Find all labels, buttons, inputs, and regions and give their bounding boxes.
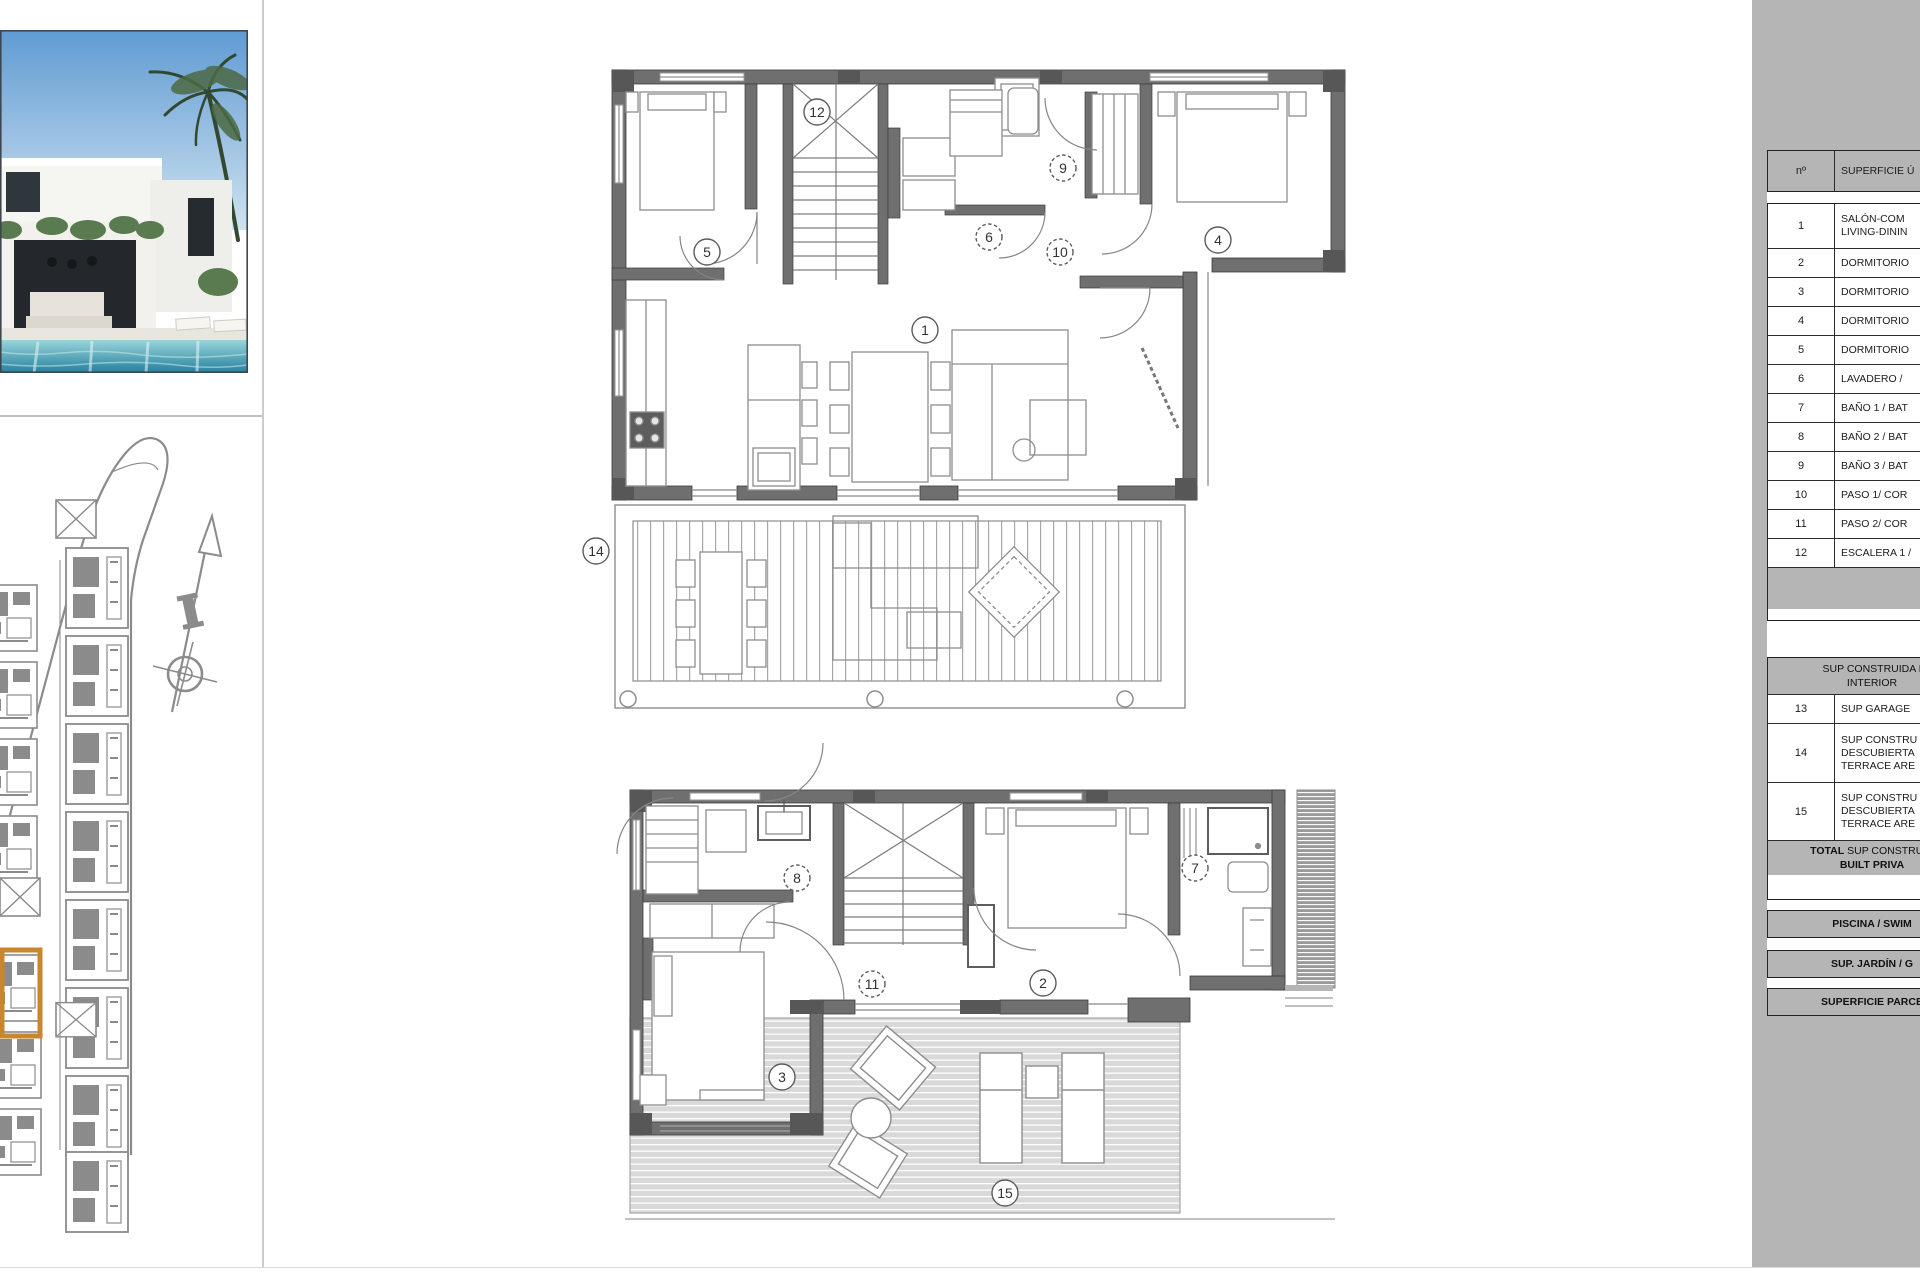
bath-7-fixtures [1184,808,1271,966]
table-row: 3DORMITORIO [1768,278,1920,307]
row-number: 1 [1768,204,1835,248]
row-description: LAVADERO / [1835,371,1920,388]
row-description: PASO 1/ COR [1835,487,1920,504]
table-row: 4DORMITORIO [1768,307,1920,336]
summary-bar-plot: SUPERFICIE PARCE [1767,988,1920,1016]
table-row: 13SUP GARAGE [1768,695,1920,724]
table-row: 8BAÑO 2 / BAT [1768,423,1920,452]
row-description: BAÑO 1 / BAT [1835,400,1920,417]
row-number: 12 [1768,539,1835,567]
table-header-row: nº SUPERFICIE Ú [1767,150,1920,192]
table-gap [1767,621,1920,657]
row-number: 14 [1768,724,1835,782]
surface-table-panel: nº SUPERFICIE Ú 1SALÓN-COMLIVING-DININ2D… [1752,0,1920,1267]
room-marker-label: 5 [703,244,711,260]
table-row: 15SUP CONSTRUDESCUBIERTATERRACE ARE [1768,783,1920,840]
kitchen [626,300,817,490]
room-marker-label: 6 [985,229,993,245]
row-description: DORMITORIO [1835,255,1920,272]
north-arrow-icon [172,516,221,712]
row-description: DORMITORIO [1835,342,1920,359]
room-marker-label: 1 [921,322,929,338]
row-description: SALÓN-COMLIVING-DININ [1835,211,1920,241]
room-marker-label: 7 [1191,860,1199,876]
room-marker-label: 4 [1214,232,1222,248]
table-filler-cell [1768,568,1920,609]
wardrobe [650,904,774,938]
row-number: 8 [1768,423,1835,451]
site-plan [0,438,225,1232]
table-row: 6LAVADERO / [1768,365,1920,394]
plan-sheet-page: 12961054114 87112315 nº SUPERFICIE Ú 1SA… [0,0,1920,1280]
lower-stairs [844,803,963,945]
row-description: DORMITORIO [1835,284,1920,301]
row-description: ESCALERA 1 / [1835,545,1920,562]
bed-5 [626,92,726,210]
lower-floor-plan [617,743,1335,1219]
table-row: 11PASO 2/ COR [1768,510,1920,539]
bed-2 [968,808,1148,967]
row-number: 7 [1768,394,1835,422]
table-row: 10PASO 1/ COR [1768,481,1920,510]
table-row: 7BAÑO 1 / BAT [1768,394,1920,423]
rooms-table: 1SALÓN-COMLIVING-DININ2DORMITORIO3DORMIT… [1767,203,1920,621]
floor-plan-drawings: 12961054114 87112315 [0,0,1920,1280]
room-marker-label: 8 [793,870,801,886]
row-description: BAÑO 2 / BAT [1835,429,1920,446]
table-row: 9BAÑO 3 / BAT [1768,452,1920,481]
table-row: 2DORMITORIO [1768,249,1920,278]
upper-terrace-deck [615,505,1185,708]
bath-9-fixtures [903,78,1138,210]
row-number: 15 [1768,783,1835,840]
room-marker-label: 12 [809,104,825,120]
pergola-louvers [1285,790,1335,1006]
room-marker-label: 2 [1039,975,1047,991]
summary-bar-pool: PISCINA / SWIM [1767,910,1920,938]
table-header-desc: SUPERFICIE Ú [1835,163,1920,180]
room-marker-label: 15 [997,1185,1013,1201]
summary-bar-garden: SUP. JARDÍN / G [1767,950,1920,978]
table-row: 12ESCALERA 1 / [1768,539,1920,568]
row-number: 9 [1768,452,1835,480]
row-description: PASO 2/ COR [1835,516,1920,533]
bed-3 [640,952,764,1105]
row-number: 13 [1768,695,1835,723]
row-description: SUP GARAGE [1835,701,1920,718]
row-number: 3 [1768,278,1835,306]
table-row: 5DORMITORIO [1768,336,1920,365]
row-number: 6 [1768,365,1835,393]
room-marker-label: 9 [1059,160,1067,176]
row-number: 10 [1768,481,1835,509]
row-number: 11 [1768,510,1835,538]
row-description: SUP CONSTRUDESCUBIERTATERRACE ARE [1835,732,1920,775]
table-gap [1767,938,1920,950]
bed-4 [1158,92,1306,202]
upper-floor-plan [612,70,1345,708]
table-header-num: nº [1768,151,1835,191]
row-number: 5 [1768,336,1835,364]
table-gap [1767,192,1920,203]
row-number: 4 [1768,307,1835,335]
total-row: TOTAL SUP CONSTRUID BUILT PRIVA [1768,840,1920,875]
room-marker-label: 10 [1052,244,1068,260]
room-marker-label: 14 [588,543,604,559]
built-surface-header: SUP CONSTRUIDA I INTERIOR [1768,658,1920,695]
room-marker-label: 3 [778,1069,786,1085]
row-number: 2 [1768,249,1835,277]
upper-right-details [1142,272,1208,486]
sofa [952,330,1086,480]
dining-table [830,352,950,482]
room-marker-label: 11 [865,976,880,992]
row-description: DORMITORIO [1835,313,1920,330]
table-row: 14SUP CONSTRUDESCUBIERTATERRACE ARE [1768,724,1920,783]
built-surface-table: SUP CONSTRUIDA I INTERIOR 13SUP GARAGE14… [1767,657,1920,900]
table-row: 1SALÓN-COMLIVING-DININ [1768,204,1920,249]
built-surface-rows: 13SUP GARAGE14SUP CONSTRUDESCUBIERTATERR… [1768,695,1920,840]
table-gap [1767,978,1920,988]
row-description: BAÑO 3 / BAT [1835,458,1920,475]
table-gap [1767,900,1920,910]
row-description: SUP CONSTRUDESCUBIERTATERRACE ARE [1835,790,1920,833]
